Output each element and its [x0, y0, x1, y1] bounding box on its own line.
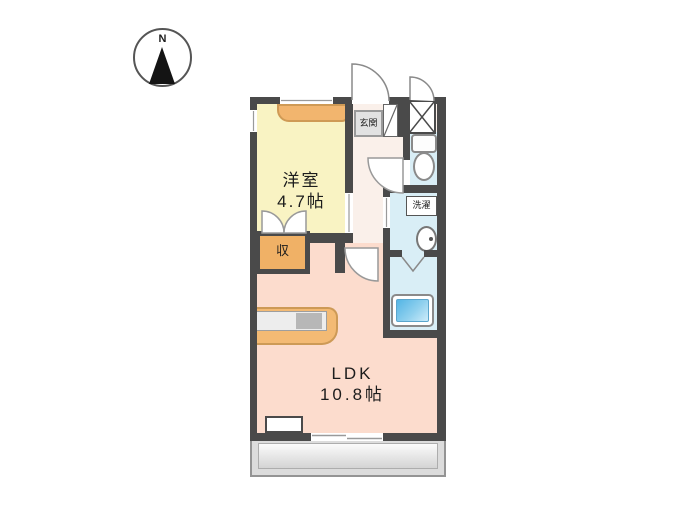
compass-needle-icon [149, 47, 175, 84]
laundry-label: 洗濯 [412, 200, 430, 211]
toilet-door-opening [403, 160, 410, 185]
kitchen-sink [296, 313, 322, 329]
window-west [250, 110, 257, 132]
balcony-sliding-window [311, 433, 383, 441]
window-north [280, 97, 333, 104]
western-room-label: 洋室 4.7帖 [253, 170, 350, 213]
floor-plan: N 洗濯 [0, 0, 700, 525]
shoe-cabinet [383, 104, 398, 137]
entrance-label: 玄関 [354, 118, 383, 129]
laundry-machine-space: 洗濯 [406, 196, 437, 216]
wall-stub [335, 243, 345, 273]
ldk-name: LDK [280, 363, 425, 384]
wall-toilet-south [383, 185, 445, 193]
bathtub-water [396, 299, 429, 322]
wall-ldk-north [308, 233, 345, 243]
entrance-opening [352, 97, 389, 104]
wall-east [437, 97, 446, 441]
appliance-space [265, 416, 303, 433]
ldk-label: LDK 10.8帖 [280, 363, 425, 406]
washroom-door-opening [383, 197, 390, 228]
wall-bath-north-left [390, 250, 402, 257]
western-room-size: 4.7帖 [253, 191, 350, 212]
meter-box [408, 100, 436, 134]
toilet-icon [413, 152, 435, 181]
wall-bath-north-right [424, 250, 438, 257]
balcony-floor [258, 443, 438, 469]
wall-toilet-west [403, 137, 410, 160]
wall-west [250, 97, 257, 441]
storage-label: 収 [255, 243, 310, 259]
wall-bath-south [383, 330, 445, 338]
western-room-name: 洋室 [253, 170, 350, 191]
compass-north-label: N [133, 33, 192, 47]
closet-strip [277, 104, 348, 122]
wash-basin-icon [416, 226, 437, 252]
faucet-icon [429, 237, 433, 241]
ldk-size: 10.8帖 [280, 384, 425, 405]
toilet-tank-icon [411, 134, 437, 153]
